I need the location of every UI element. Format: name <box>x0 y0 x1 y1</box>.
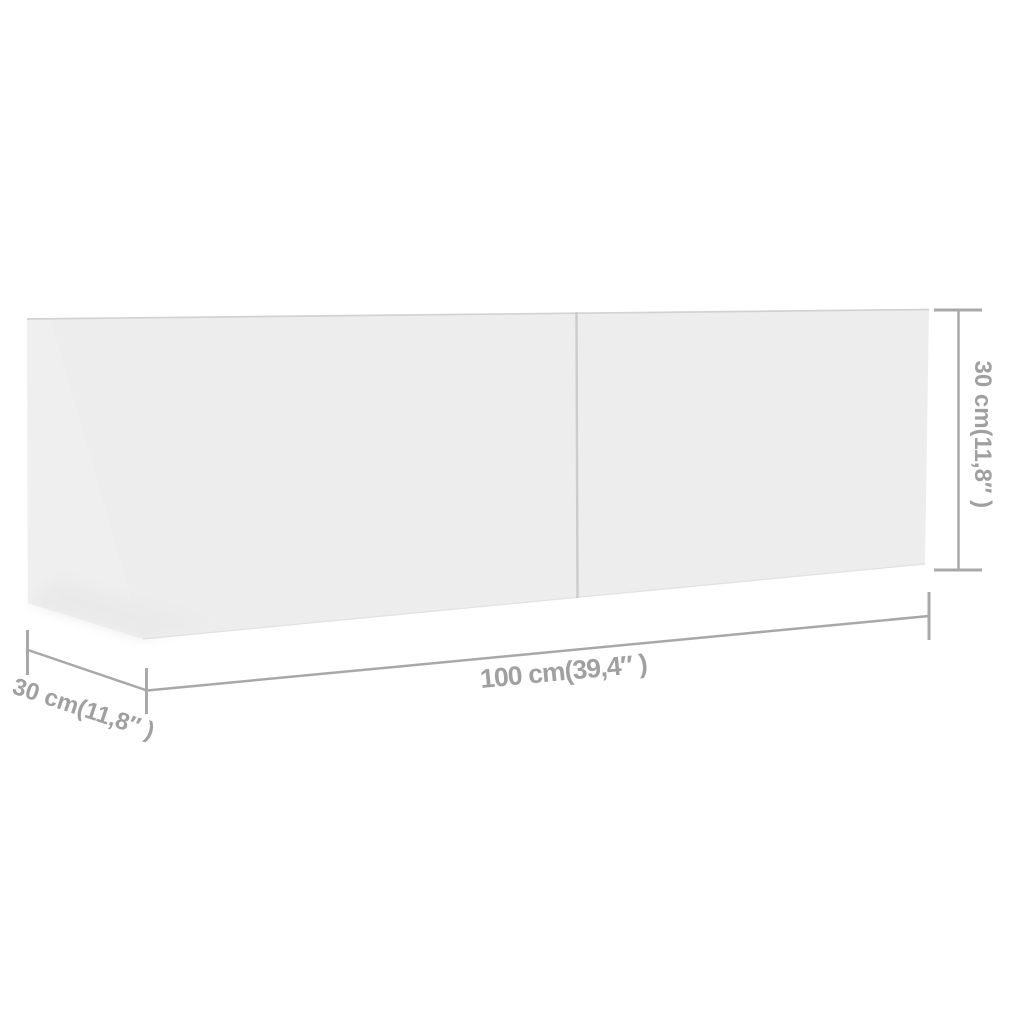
svg-text:30 cm(11,8″ ): 30 cm(11,8″ ) <box>969 361 996 509</box>
